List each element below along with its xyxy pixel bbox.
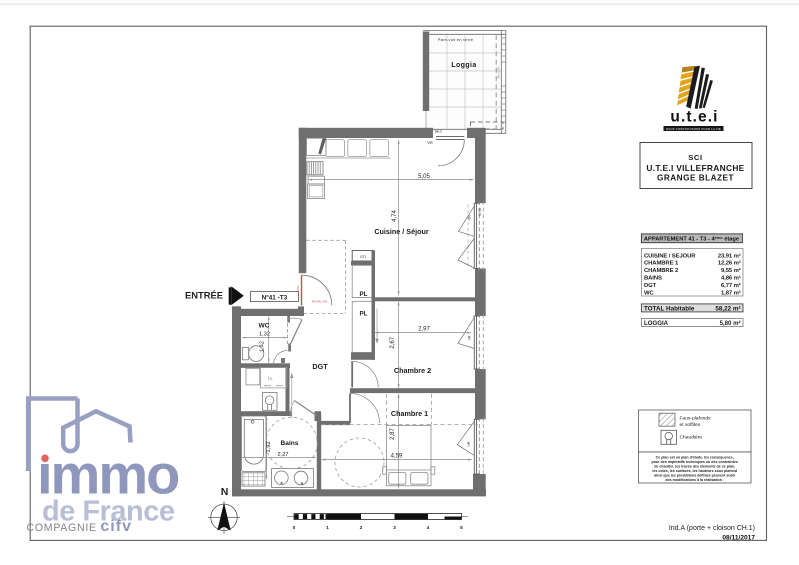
svg-text:les cotes, les surfaces, les h: les cotes, les surfaces, les hauteurs so…	[652, 469, 737, 473]
svg-text:Loggia: Loggia	[451, 62, 476, 69]
svg-text:58,22 m²: 58,22 m²	[715, 305, 740, 312]
svg-text:Chaudière: Chaudière	[680, 434, 703, 440]
svg-text:2,67: 2,67	[390, 336, 396, 348]
svg-text:Faux-plafonds: Faux-plafonds	[680, 416, 712, 422]
svg-text:RD.PAL.240: RD.PAL.240	[312, 300, 328, 304]
svg-text:des modifications à la réalisa: des modifications à la réalisation .	[665, 478, 724, 482]
svg-text:5,80 m²: 5,80 m²	[720, 320, 741, 327]
svg-text:2: 2	[360, 525, 363, 531]
svg-text:CUISINE / SEJOUR: CUISINE / SEJOUR	[644, 253, 696, 259]
svg-text:U.T.E.I VILLEFRANCHE: U.T.E.I VILLEFRANCHE	[646, 163, 744, 173]
svg-text:Pare-vue en verre: Pare-vue en verre	[438, 37, 474, 42]
svg-text:Ind.A (porte + cloison CH.1): Ind.A (porte + cloison CH.1)	[669, 525, 755, 532]
svg-text:9,55 m²: 9,55 m²	[721, 267, 741, 274]
svg-text:Chambre 2: Chambre 2	[394, 366, 431, 375]
svg-text:Chambre 1: Chambre 1	[391, 409, 428, 418]
svg-text:5: 5	[460, 525, 463, 531]
svg-text:PL: PL	[360, 291, 368, 298]
svg-text:1,87 m²: 1,87 m²	[721, 289, 741, 296]
svg-text:ainsi que les prestations défi: ainsi que les prestations définies peuve…	[654, 473, 736, 477]
svg-text:3: 3	[393, 525, 396, 531]
svg-text:N°41 -T3: N°41 -T3	[262, 294, 288, 302]
svg-text:CHAMBRE 1: CHAMBRE 1	[644, 261, 679, 267]
svg-text:et soffites: et soffites	[680, 422, 701, 428]
svg-text:SCI: SCI	[688, 153, 702, 162]
svg-text:GTI: GTI	[360, 255, 366, 259]
svg-text:de chantier, les tracés des él: de chantier, les tracés des éléments de …	[654, 464, 735, 468]
svg-text:2,97: 2,97	[418, 327, 430, 333]
svg-text:5,05: 5,05	[418, 174, 430, 180]
svg-text:WC: WC	[259, 323, 270, 330]
svg-text:PL: PL	[360, 311, 368, 318]
svg-text:APPARTEMENT 41 - T3 - 4ème éta: APPARTEMENT 41 - T3 - 4ème étage	[644, 235, 739, 243]
svg-text:LOGGIA: LOGGIA	[644, 320, 669, 327]
svg-text:2,87: 2,87	[390, 428, 396, 440]
svg-text:12,26 m²: 12,26 m²	[718, 260, 741, 267]
svg-text:VR: VR	[468, 215, 472, 220]
svg-text:DGT: DGT	[644, 283, 657, 289]
svg-text:VR: VR	[427, 140, 433, 145]
svg-text:CHAMBRE 2: CHAMBRE 2	[644, 268, 679, 274]
svg-text:N: N	[221, 486, 229, 498]
svg-text:08/11/2017: 08/11/2017	[722, 535, 755, 542]
svg-text:pour des impératifs techniques: pour des impératifs techniques ou des co…	[652, 460, 738, 464]
svg-text:1,32: 1,32	[259, 332, 270, 338]
svg-text:WC: WC	[644, 290, 654, 296]
svg-text:4,74: 4,74	[392, 210, 398, 222]
svg-text:Cuisine / Séjour: Cuisine / Séjour	[374, 227, 429, 236]
svg-text:6,77 m²: 6,77 m²	[721, 282, 741, 289]
svg-text:LL: LL	[268, 377, 272, 381]
svg-text:4: 4	[427, 525, 430, 531]
svg-text:2,27: 2,27	[278, 452, 289, 458]
svg-text:4,86 m²: 4,86 m²	[721, 275, 741, 282]
svg-text:1: 1	[326, 525, 329, 531]
svg-text:NOUS CONSTRUISONS POUR LA VIE: NOUS CONSTRUISONS POUR LA VIE	[666, 127, 721, 131]
svg-text:Sè-2: Sè-2	[435, 130, 442, 134]
svg-text:BAINS: BAINS	[644, 276, 662, 282]
svg-text:DGT: DGT	[312, 362, 328, 371]
svg-text:u.t.e.i: u.t.e.i	[670, 109, 718, 126]
svg-text:4,59: 4,59	[391, 454, 403, 460]
svg-text:TOTAL Habitable: TOTAL Habitable	[644, 305, 695, 312]
svg-text:VR: VR	[467, 441, 471, 446]
svg-text:Sè 10: Sè 10	[478, 208, 482, 217]
svg-text:GRANGE BLAZET: GRANGE BLAZET	[657, 174, 734, 183]
svg-text:1,42: 1,42	[260, 341, 266, 352]
svg-text:Ce plan est un plan d'étude. E: Ce plan est un plan d'étude. En conséque…	[656, 455, 734, 459]
svg-text:Bains: Bains	[281, 440, 299, 447]
svg-text:23,91 m²: 23,91 m²	[718, 252, 741, 259]
svg-text:1,92: 1,92	[266, 442, 272, 453]
svg-text:0: 0	[293, 525, 296, 531]
svg-text:ENTRÉE: ENTRÉE	[185, 290, 223, 301]
svg-text:VR: VR	[467, 335, 471, 340]
